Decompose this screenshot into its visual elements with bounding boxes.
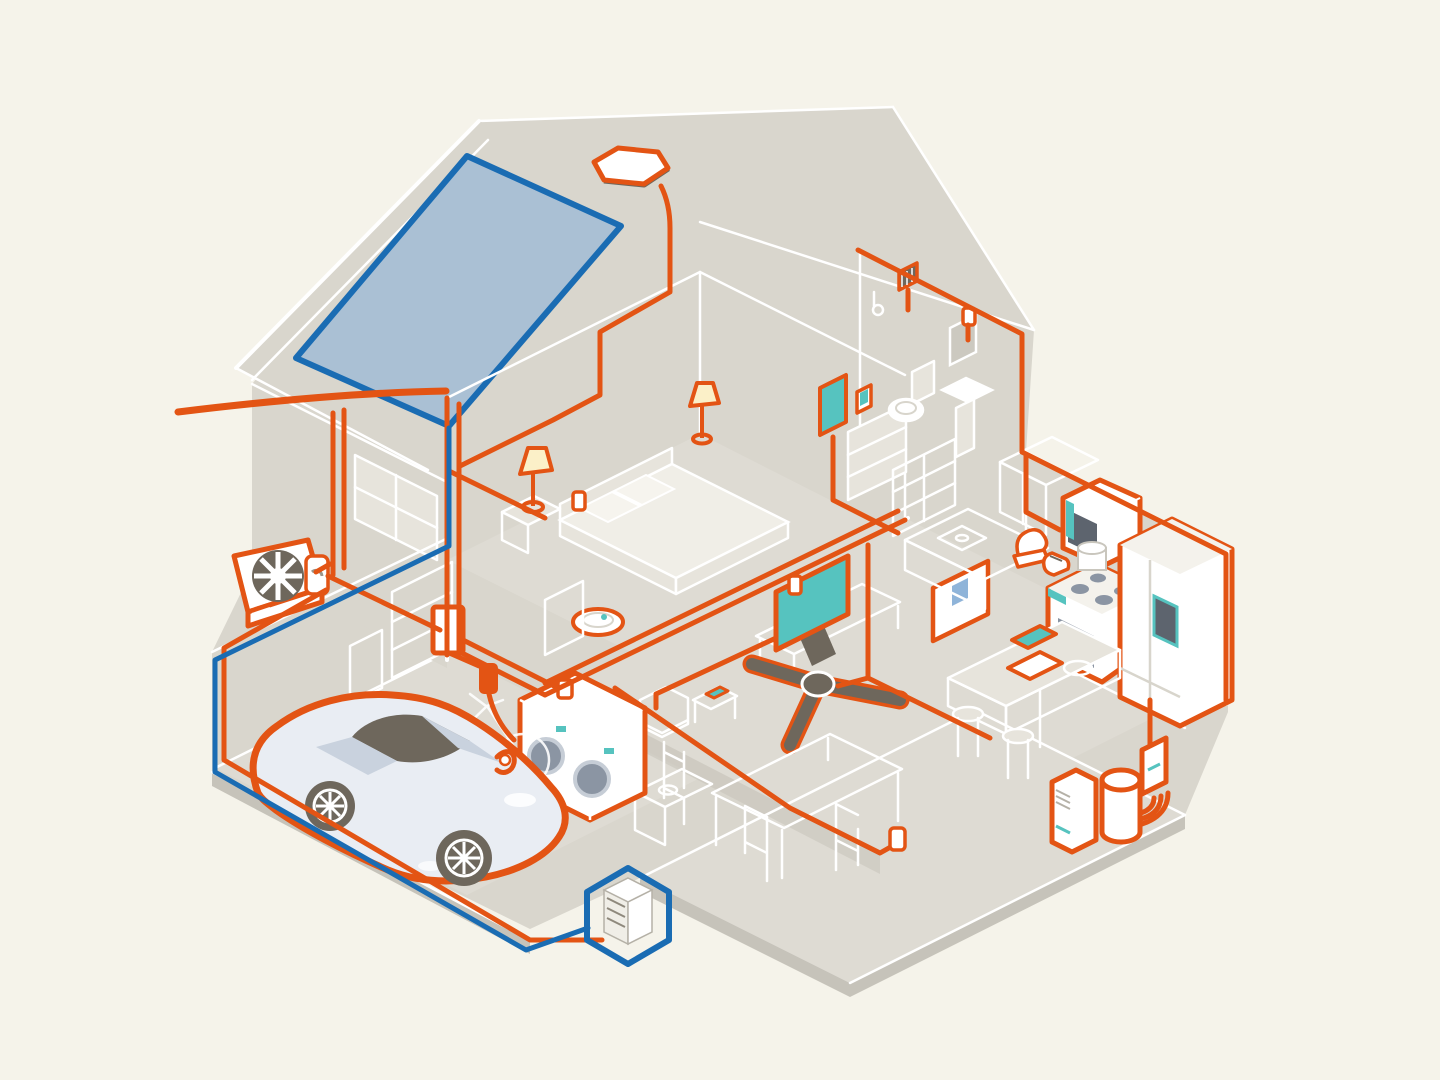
home-electrification-illustration: Isometric cutaway illustration of an all…: [0, 0, 1440, 1080]
car-wheel: [436, 830, 492, 886]
attic-fan: [594, 148, 668, 184]
lamp-shade: [520, 448, 552, 474]
wall-switch: [573, 492, 585, 510]
water-heater: [1102, 770, 1140, 842]
home-battery: [587, 868, 669, 964]
robot-vacuum: [573, 609, 623, 635]
wall-control: [857, 385, 871, 413]
cooking-pot: [1078, 542, 1106, 570]
bedroom-tv: [820, 375, 846, 435]
portable-unit: [1052, 770, 1096, 852]
floor-outlet: [890, 828, 905, 850]
battery-box: [604, 878, 652, 944]
dryer-door: [575, 762, 609, 796]
sub-panel: [1142, 738, 1166, 794]
heat-pump-fan: [252, 550, 304, 602]
wall-switch: [789, 576, 801, 594]
lamp-shade: [690, 383, 719, 406]
illustration-stage: Isometric cutaway illustration of an all…: [0, 0, 1440, 1080]
